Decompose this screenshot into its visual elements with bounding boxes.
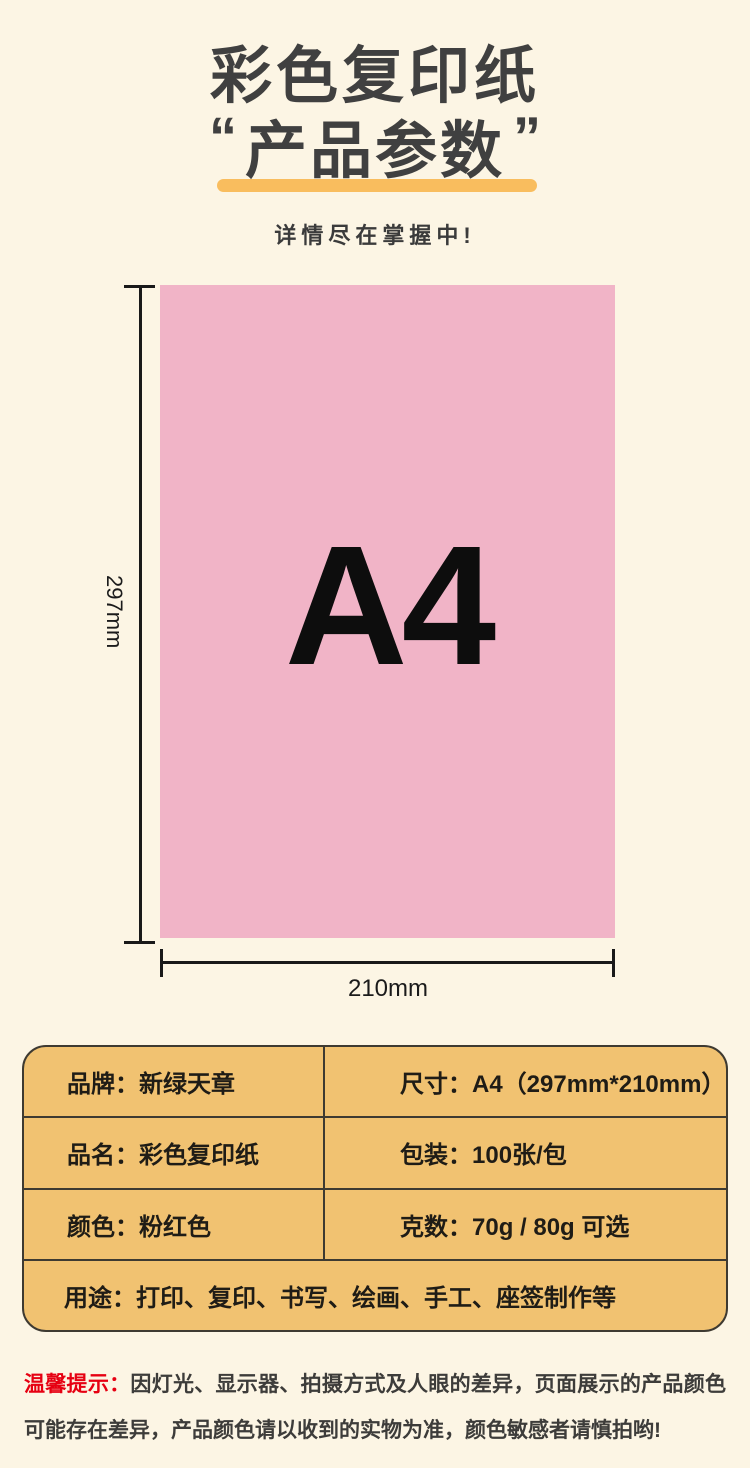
spec-product-name: 品名：彩色复印纸 xyxy=(24,1118,325,1187)
height-dimension-label: 297mm xyxy=(101,575,127,648)
open-quote-mark: “ xyxy=(209,109,237,165)
width-dimension-label: 210mm xyxy=(161,975,615,1003)
spec-usage: 用途：打印、复印、书写、绘画、手工、座签制作等 xyxy=(24,1261,726,1330)
close-quote-mark: ” xyxy=(513,109,541,165)
spec-packaging: 包装：100张/包 xyxy=(325,1118,726,1187)
tagline: 详情尽在掌握中! xyxy=(0,218,750,250)
table-row: 用途：打印、复印、书写、绘画、手工、座签制作等 xyxy=(24,1259,726,1330)
notice: 温馨提示：因灯光、显示器、拍摄方式及人眼的差异，页面展示的产品颜色可能存在差异，… xyxy=(24,1362,726,1454)
page-title: 彩色复印纸 xyxy=(0,44,750,110)
table-row: 品名：彩色复印纸 包装：100张/包 xyxy=(24,1116,726,1187)
notice-text: 因灯光、显示器、拍摄方式及人眼的差异，页面展示的产品颜色可能存在差异，产品颜色请… xyxy=(24,1373,726,1442)
width-dimension-line xyxy=(161,961,615,964)
spec-brand: 品牌：新绿天章 xyxy=(24,1047,325,1116)
spec-size: 尺寸：A4（297mm*210mm） xyxy=(325,1047,726,1116)
paper-size-label: A4 xyxy=(285,508,490,704)
width-dimension-cap-left xyxy=(160,949,163,977)
spec-weight: 克数：70g / 80g 可选 xyxy=(325,1190,726,1259)
a4-paper-swatch: A4 xyxy=(160,285,615,938)
width-dimension-cap-right xyxy=(612,949,615,977)
product-detail-page: 彩色复印纸 “产品参数” 详情尽在掌握中! A4 297mm 210mm 品牌：… xyxy=(0,0,750,1468)
subtitle-line: “产品参数” xyxy=(0,118,750,186)
table-row: 颜色：粉红色 克数：70g / 80g 可选 xyxy=(24,1188,726,1259)
table-row: 品牌：新绿天章 尺寸：A4（297mm*210mm） xyxy=(24,1047,726,1116)
height-dimension-cap-bottom xyxy=(124,941,155,944)
height-dimension-cap-top xyxy=(124,285,155,288)
height-dimension-line xyxy=(139,286,142,944)
spec-table: 品牌：新绿天章 尺寸：A4（297mm*210mm） 品名：彩色复印纸 包装：1… xyxy=(22,1045,728,1332)
notice-prefix: 温馨提示： xyxy=(24,1373,130,1396)
spec-color: 颜色：粉红色 xyxy=(24,1190,325,1259)
subtitle: 产品参数 xyxy=(245,118,505,186)
